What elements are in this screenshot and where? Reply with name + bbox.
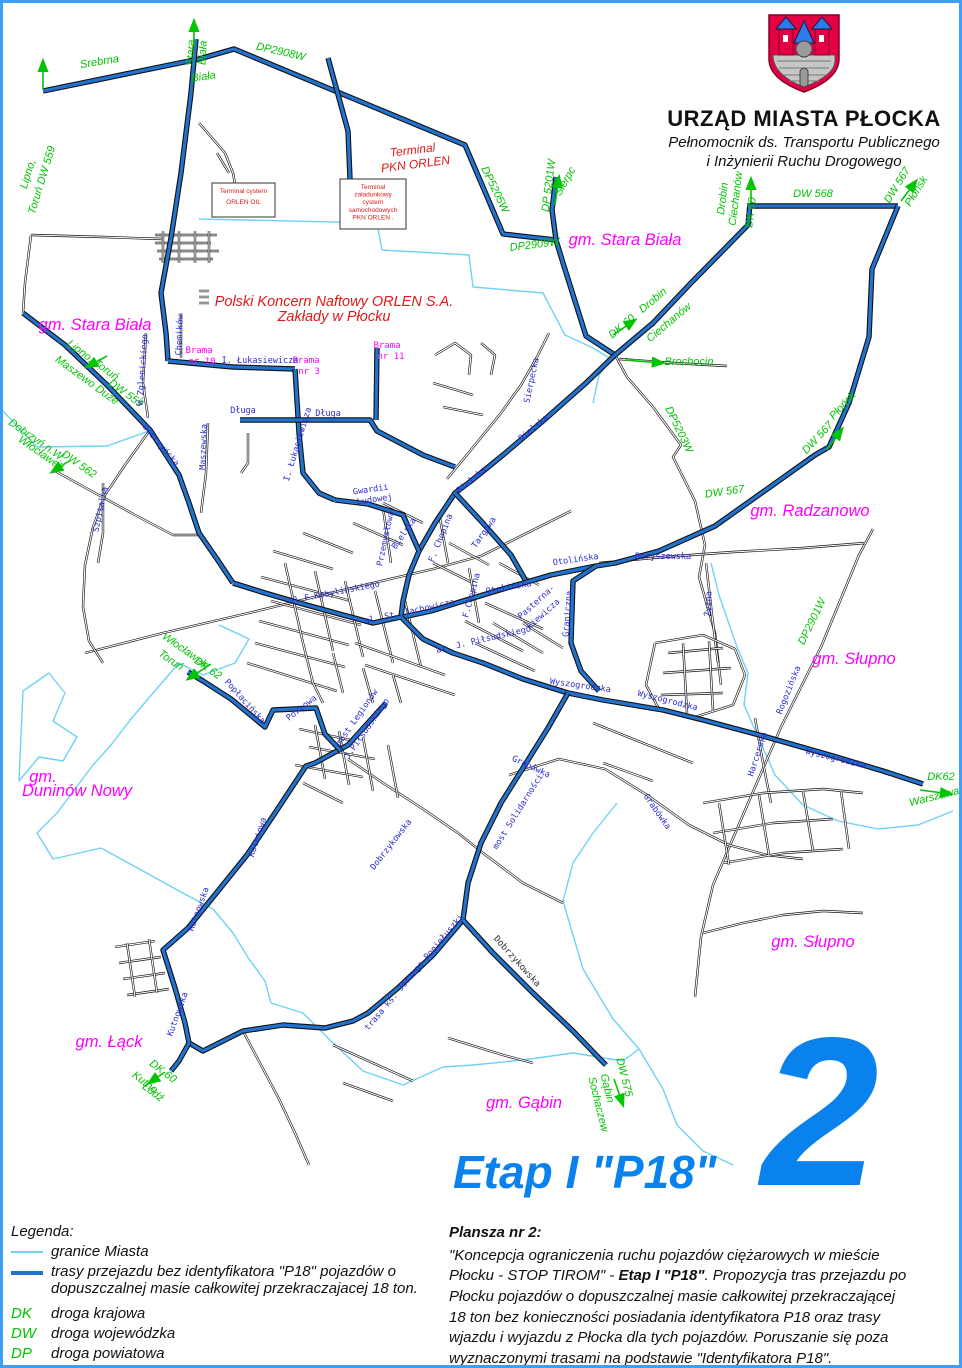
map-label: Otolińska bbox=[485, 579, 532, 597]
map-label: I. Łukasiewicza bbox=[222, 356, 299, 366]
map-label: gm. Radzanowo bbox=[750, 502, 869, 520]
road-class-dk-label: droga krajowa bbox=[51, 1305, 145, 1322]
street-line-fill bbox=[333, 1045, 413, 1081]
map-label: gm. Gąbin bbox=[486, 1094, 562, 1112]
truck-route-line bbox=[171, 1043, 189, 1071]
street-line-fill bbox=[303, 533, 353, 553]
sheet-number: 2 bbox=[761, 1017, 879, 1208]
street-line-fill bbox=[393, 675, 401, 703]
map-label: Biała bbox=[196, 40, 209, 65]
map-label: Srebrna bbox=[79, 53, 120, 71]
header-subtitle-1: Pełnomocnik ds. Transportu Publicznego bbox=[651, 134, 957, 153]
map-label: Wyszogrodzka bbox=[804, 747, 866, 772]
map-label: Popłacińska bbox=[222, 677, 267, 726]
truck-route-casing bbox=[189, 920, 463, 1051]
map-label: Zakłady w Płocku bbox=[277, 309, 391, 325]
boundary-line-swatch bbox=[11, 1245, 43, 1259]
legend-boundary-label: granice Miasta bbox=[51, 1243, 149, 1260]
street-line-fill bbox=[247, 663, 337, 691]
map-label: Chemików bbox=[173, 313, 185, 355]
street-line-fill bbox=[127, 943, 135, 997]
road-class-dw: DW bbox=[11, 1325, 43, 1342]
map-label: gm. Stara Biała bbox=[569, 231, 682, 249]
map-label: Brama bbox=[373, 341, 400, 351]
map-label: Warszawa bbox=[908, 785, 961, 809]
street-line-fill bbox=[149, 939, 157, 993]
truck-route-line bbox=[463, 920, 606, 1065]
map-label: Boryszewska bbox=[635, 552, 691, 562]
map-label: DP2909W bbox=[509, 236, 562, 254]
street-line bbox=[55, 471, 199, 535]
street-line-fill bbox=[303, 783, 343, 803]
stage-title: Etap I "P18" bbox=[453, 1145, 717, 1199]
map-label: Dobrzyńska bbox=[140, 423, 181, 469]
street-line-fill bbox=[841, 791, 849, 849]
street-line-fill bbox=[709, 641, 713, 711]
street-line-fill bbox=[31, 235, 163, 239]
street-line-fill bbox=[433, 383, 473, 395]
page-title: URZĄD MIASTA PŁOCKA bbox=[651, 106, 957, 132]
street-line-fill bbox=[475, 643, 535, 671]
terminal-label-text: cystern bbox=[363, 199, 384, 206]
map-label: nr 11 bbox=[377, 352, 404, 362]
street-line-fill bbox=[271, 601, 361, 625]
street-line bbox=[241, 433, 248, 473]
header-subtitle-2: i Inżynierii Ruchu Drogowego bbox=[651, 153, 957, 172]
terminal-label-text: PKN ORLEN . bbox=[352, 214, 393, 221]
map-label: DK62 bbox=[927, 771, 955, 783]
legend: Legenda: granice Miasta trasy przejazdu … bbox=[11, 1223, 441, 1362]
map-label: DW 567 bbox=[704, 483, 746, 501]
map-label: Biała bbox=[191, 69, 217, 84]
street-line-fill bbox=[343, 1083, 393, 1101]
street-line-fill bbox=[83, 430, 150, 663]
road-class-dw-label: droga wojewódzka bbox=[51, 1325, 175, 1342]
map-label: Kutnowska bbox=[187, 886, 212, 933]
map-label: Dobrzykowska bbox=[369, 817, 415, 872]
street-line-fill bbox=[55, 471, 199, 535]
truck-route-casing bbox=[240, 420, 455, 467]
map-label: DW 575 bbox=[613, 1057, 634, 1099]
terminal-label-text: ORLEN OIL bbox=[226, 199, 261, 206]
terminal-label-text: samochodowych bbox=[349, 207, 398, 214]
map-label: Bielska bbox=[455, 465, 489, 496]
street-line bbox=[703, 911, 863, 933]
street-line-fill bbox=[668, 648, 723, 653]
city-boundary-line bbox=[19, 673, 77, 781]
plock-coat-of-arms-icon bbox=[767, 13, 841, 95]
header: URZĄD MIASTA PŁOCKA Pełnomocnik ds. Tran… bbox=[651, 13, 957, 172]
map-label: DW 568 bbox=[793, 188, 834, 200]
street-line-fill bbox=[435, 343, 471, 375]
map-label: Brama bbox=[185, 346, 212, 356]
map-label: Maszewska bbox=[198, 424, 210, 470]
map-label: Przemysłowa bbox=[375, 510, 396, 567]
street-line-fill bbox=[719, 803, 729, 865]
truck-route-casing bbox=[328, 58, 350, 179]
legend-route-label-2: dopuszczalnej masie całkowitej przekracz… bbox=[51, 1280, 441, 1297]
city-boundary-line bbox=[3, 411, 189, 501]
street-line-fill bbox=[259, 621, 349, 645]
map-label: W.Zglenickiego bbox=[136, 334, 151, 406]
street-line bbox=[481, 343, 495, 375]
map-label: al.F.Kobylińskiego bbox=[288, 579, 380, 606]
description-heading: Plansza nr 2: bbox=[449, 1223, 911, 1244]
street-line bbox=[83, 430, 150, 663]
map-label: Bielska bbox=[517, 413, 551, 444]
street-line-fill bbox=[433, 563, 473, 583]
map-label: gm. Słupno bbox=[812, 650, 895, 668]
road-class-dp: DP bbox=[11, 1345, 43, 1362]
street-line-fill bbox=[333, 653, 343, 693]
map-label: Żyzna bbox=[703, 591, 715, 617]
truck-route-casing bbox=[556, 240, 615, 355]
map-label: al. J. Piłsudskiego bbox=[435, 624, 532, 656]
map-label: gm. Słupno bbox=[771, 933, 854, 951]
map-label: gm. Stara Biała bbox=[39, 316, 152, 334]
map-sheet: Terminal cysternORLEN OILTerminalzaładun… bbox=[0, 0, 962, 1368]
truck-route-line bbox=[189, 920, 463, 1051]
map-label: Duninów Nowy bbox=[22, 782, 134, 800]
road-class-dp-label: droga powiatowa bbox=[51, 1345, 164, 1362]
map-label: Sierpecka bbox=[522, 357, 541, 404]
street-line bbox=[435, 343, 471, 375]
map-label: Łódź bbox=[140, 1081, 167, 1105]
street-line-fill bbox=[663, 668, 731, 673]
map-label: Długa bbox=[315, 409, 341, 419]
street-line-fill bbox=[119, 957, 161, 963]
map-label: Długa bbox=[230, 406, 256, 416]
street-line bbox=[243, 1031, 309, 1165]
map-label: Brochocin bbox=[665, 356, 714, 368]
street-line-fill bbox=[273, 551, 333, 569]
route-line-swatch bbox=[11, 1265, 43, 1279]
street-line-fill bbox=[365, 665, 455, 695]
sheet-description: Plansza nr 2: "Koncepcja ograniczenia ru… bbox=[449, 1223, 911, 1368]
street-line-fill bbox=[363, 737, 373, 791]
street-line-fill bbox=[593, 723, 693, 763]
map-label: gm. Łąck bbox=[76, 1033, 144, 1051]
legend-route-label-1: trasy przejazdu bez identyfikatora "P18"… bbox=[51, 1263, 396, 1280]
map-label: Ciechanów bbox=[727, 170, 746, 227]
description-body: "Koncepcja ograniczenia ruchu pojazdów c… bbox=[449, 1246, 911, 1368]
street-line-fill bbox=[355, 643, 445, 675]
truck-route-casing bbox=[571, 566, 599, 691]
terminal-label-text: Terminal cystern bbox=[220, 188, 268, 195]
street-line-fill bbox=[348, 759, 563, 903]
map-label: nr 3 bbox=[298, 367, 320, 377]
road-class-dk: DK bbox=[11, 1305, 43, 1322]
terminal-label-text: Terminal bbox=[361, 184, 386, 191]
map-label: DK 60 bbox=[743, 196, 759, 229]
map-label: Kolejowa bbox=[247, 816, 269, 858]
map-label: Polski Koncern Naftowy ORLEN S.A. bbox=[215, 294, 454, 310]
terminal-label-text: załadunkowy bbox=[354, 192, 392, 199]
truck-route-line bbox=[240, 420, 455, 467]
street-line bbox=[713, 819, 833, 833]
city-boundary-line bbox=[37, 625, 271, 1003]
street-line-fill bbox=[443, 407, 483, 415]
map-label: trasa ks. Jerzego Popiełuszki bbox=[363, 913, 466, 1033]
legend-title: Legenda: bbox=[11, 1223, 441, 1240]
map-label: nr 10 bbox=[188, 357, 215, 367]
street-line-fill bbox=[123, 973, 165, 979]
